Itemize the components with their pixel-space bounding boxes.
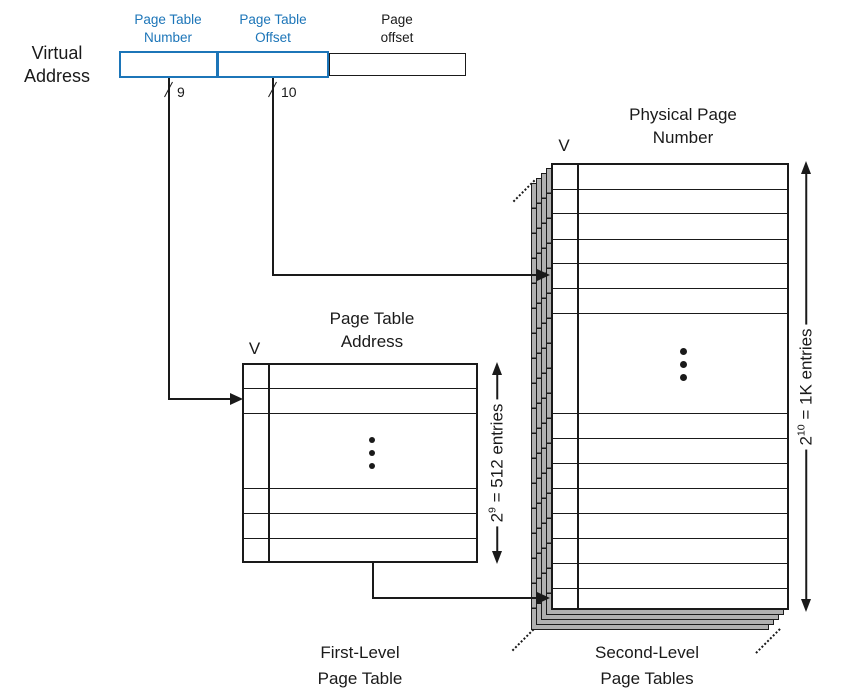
arrow-down-icon (492, 551, 502, 564)
field-label-page-offset: Page offset (347, 11, 447, 47)
row-divider (553, 513, 787, 514)
va-highlighted-fields-box (119, 51, 329, 78)
va-page-offset-box (329, 53, 466, 76)
arrowhead-into-second-level-bottom-icon (537, 592, 550, 604)
first-level-header: Page Table Address (272, 307, 472, 353)
row-divider (553, 313, 787, 314)
second-level-caption: Second-Level Page Tables (562, 640, 732, 692)
vertical-ellipsis-icon (680, 348, 687, 381)
row-divider (553, 413, 787, 414)
page-table-offset-line-vertical (272, 78, 274, 275)
page-table-number-line-horizontal (168, 398, 231, 400)
row-divider (553, 239, 787, 240)
stack-continuation-dotted-bottom-right-icon (755, 628, 780, 653)
arrow-up-icon (492, 362, 502, 375)
arrowhead-into-second-level-icon (537, 269, 550, 281)
two-level-page-table-diagram: Virtual Address Page Table Number Page T… (0, 0, 844, 698)
row-divider (553, 263, 787, 264)
valid-column-divider (268, 365, 270, 561)
first-to-second-level-line-vertical (372, 563, 374, 599)
first-level-entry-count-arrow: 29 = 512 entries (490, 362, 504, 564)
row-divider (553, 588, 787, 589)
row-divider (553, 488, 787, 489)
row-divider (553, 463, 787, 464)
row-divider (553, 213, 787, 214)
first-level-caption: First-Level Page Table (275, 640, 445, 692)
row-divider (553, 189, 787, 190)
arrow-down-icon (801, 599, 811, 612)
second-level-entry-count-label: 210 = 1K entries (796, 324, 817, 449)
first-to-second-level-line-horizontal (372, 597, 538, 599)
second-level-valid-column-header: V (551, 136, 577, 156)
vertical-ellipsis-icon (369, 437, 375, 469)
virtual-address-label: Virtual Address (10, 42, 104, 88)
bit-width-9: 9 (177, 84, 185, 100)
row-divider (244, 488, 476, 489)
second-level-header: Physical Page Number (583, 103, 783, 149)
first-level-page-table (242, 363, 478, 563)
row-divider (553, 538, 787, 539)
arrow-up-icon (801, 161, 811, 174)
stack-continuation-dotted-bottom-left-icon (512, 629, 535, 652)
first-level-entry-count-label: 29 = 512 entries (487, 400, 508, 527)
page-table-number-line-vertical (168, 78, 170, 399)
valid-column-divider (577, 165, 579, 608)
arrowhead-into-first-level-icon (230, 393, 243, 405)
second-level-entry-count-arrow: 210 = 1K entries (799, 161, 813, 612)
row-divider (244, 388, 476, 389)
page-table-offset-line-horizontal (272, 274, 538, 276)
virtual-address-label-line2: Address (10, 65, 104, 88)
row-divider (244, 513, 476, 514)
bit-width-10: 10 (281, 84, 297, 100)
virtual-address-label-line1: Virtual (10, 42, 104, 65)
second-level-page-table (551, 163, 789, 610)
field-label-page-table-number: Page Table Number (118, 11, 218, 47)
row-divider (244, 413, 476, 414)
first-level-valid-column-header: V (242, 339, 267, 359)
row-divider (244, 538, 476, 539)
va-field-divider (216, 51, 219, 78)
field-label-page-table-offset: Page Table Offset (223, 11, 323, 47)
row-divider (553, 438, 787, 439)
row-divider (553, 288, 787, 289)
row-divider (553, 563, 787, 564)
